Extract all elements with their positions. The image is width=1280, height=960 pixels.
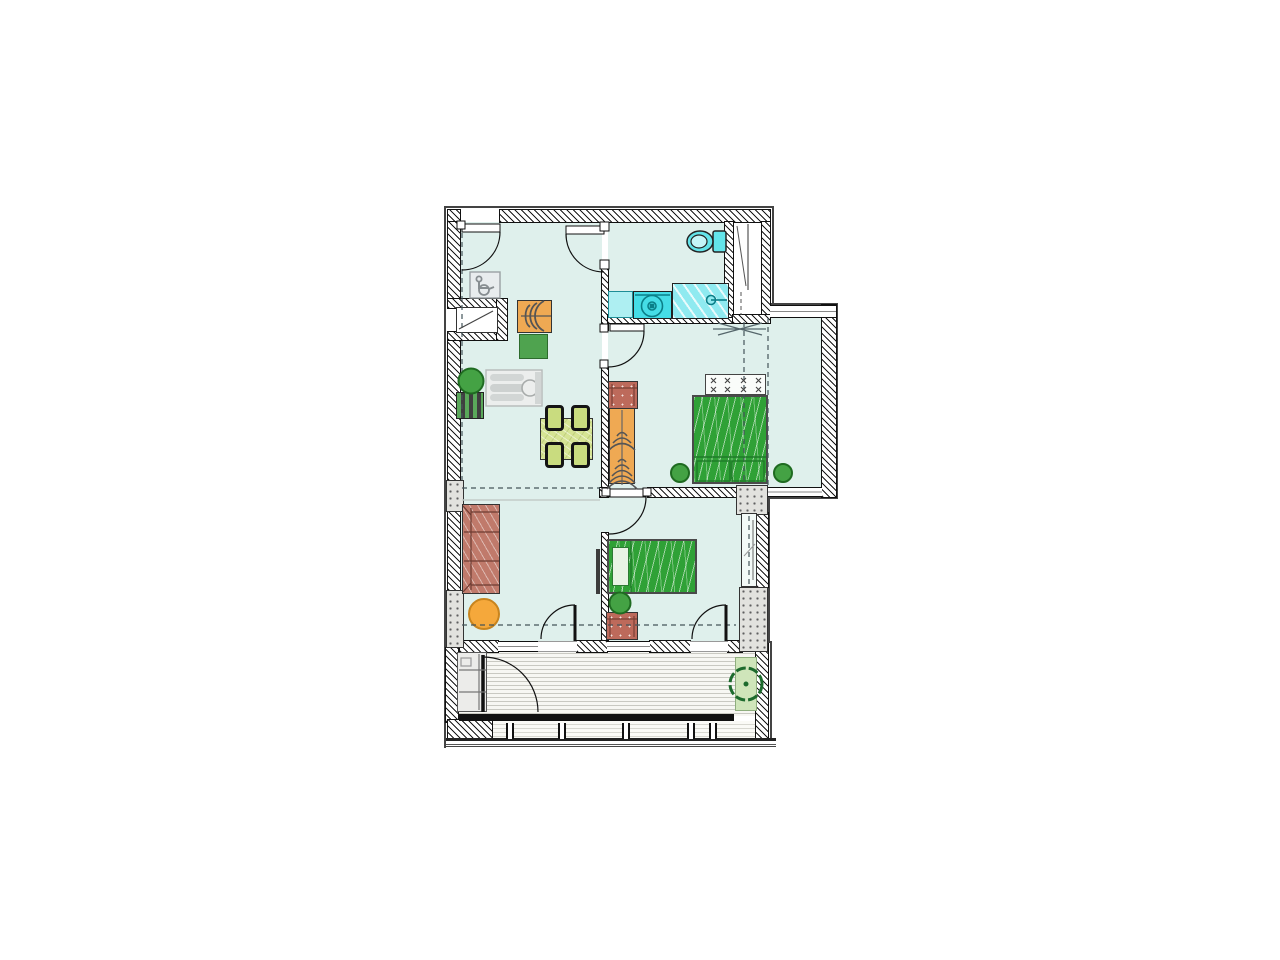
dining-chair[interactable] xyxy=(545,405,564,431)
tv[interactable] xyxy=(596,549,600,594)
bathroom-door-opening xyxy=(602,222,608,268)
bed-pillow xyxy=(612,547,629,586)
balcony-glazing-1[interactable] xyxy=(498,641,538,652)
outline-bottom xyxy=(446,746,776,747)
dining-chair[interactable] xyxy=(571,442,590,468)
wall-left-3 xyxy=(448,512,460,590)
wall-shaft-right xyxy=(762,222,770,317)
balcony-door-threshold-1 xyxy=(538,641,577,652)
balcony-door-threshold-2 xyxy=(690,641,728,652)
planter[interactable] xyxy=(735,657,757,711)
storage-cabinet[interactable] xyxy=(457,652,487,712)
outline-bay-right xyxy=(836,303,838,499)
floor-bay-window xyxy=(766,316,824,489)
pillar-bay-corner xyxy=(736,485,768,515)
kitchen-unit[interactable] xyxy=(519,334,548,359)
dining-chair[interactable] xyxy=(545,442,564,468)
entry-closet[interactable] xyxy=(456,307,498,333)
outline-bay-bottom xyxy=(768,497,838,499)
wall-shaft-bottom xyxy=(733,315,770,323)
railing-post xyxy=(709,723,717,739)
wall-bottom-3 xyxy=(650,641,690,652)
wall-balcony-right xyxy=(756,644,768,740)
wall-balcony-corner-left xyxy=(448,720,492,740)
bathroom-vanity[interactable] xyxy=(608,291,633,318)
washing-machine[interactable] xyxy=(633,291,672,319)
dining-chair[interactable] xyxy=(571,405,590,431)
bay-window-bottom[interactable] xyxy=(768,487,822,497)
wall-bottom-2 xyxy=(577,641,607,652)
pouf[interactable] xyxy=(468,598,500,630)
wall-top xyxy=(500,210,770,222)
outline-right-upper xyxy=(772,208,774,312)
wall-niche-jamb xyxy=(497,299,507,340)
double-bed[interactable] xyxy=(692,395,768,484)
wall-left-1 xyxy=(448,222,460,300)
wall-top-left xyxy=(448,210,460,222)
bathtub[interactable] xyxy=(672,283,729,319)
railing-post xyxy=(558,723,566,739)
wardrobe[interactable] xyxy=(609,408,635,484)
floor-shaft xyxy=(733,222,762,317)
bay-window-top[interactable] xyxy=(770,305,836,318)
coat-wardrobe[interactable] xyxy=(517,300,552,333)
wall-right-window-side xyxy=(757,513,768,587)
sofa[interactable] xyxy=(462,504,500,594)
outline-right-lower xyxy=(768,499,770,643)
pillar-right-lower xyxy=(739,587,768,652)
balcony-deck xyxy=(458,648,756,716)
railing-post xyxy=(687,723,695,739)
balcony-glazing-2[interactable] xyxy=(607,641,650,652)
window-bedroom2[interactable] xyxy=(741,513,757,587)
nightstand[interactable] xyxy=(606,612,638,640)
railing-post xyxy=(622,723,630,739)
pillar-left-2 xyxy=(446,590,464,648)
bedroom1-door-opening xyxy=(602,330,608,368)
wall-bottom-1 xyxy=(460,641,498,652)
railing-post xyxy=(506,723,514,739)
floor-plan-canvas xyxy=(0,0,1280,960)
outline-top xyxy=(444,206,774,208)
wall-bay-right xyxy=(822,305,836,497)
outline-balcony-right xyxy=(770,641,772,745)
wall-bedroom2-top-corner xyxy=(600,488,608,497)
entry-opening xyxy=(460,210,500,222)
headboard[interactable] xyxy=(705,374,766,395)
wall-bedroom2-top xyxy=(648,488,740,497)
balcony-drain-band xyxy=(459,714,734,721)
radiator-mat[interactable] xyxy=(456,392,484,419)
balcony-railing xyxy=(446,738,776,745)
dresser[interactable] xyxy=(608,381,638,409)
